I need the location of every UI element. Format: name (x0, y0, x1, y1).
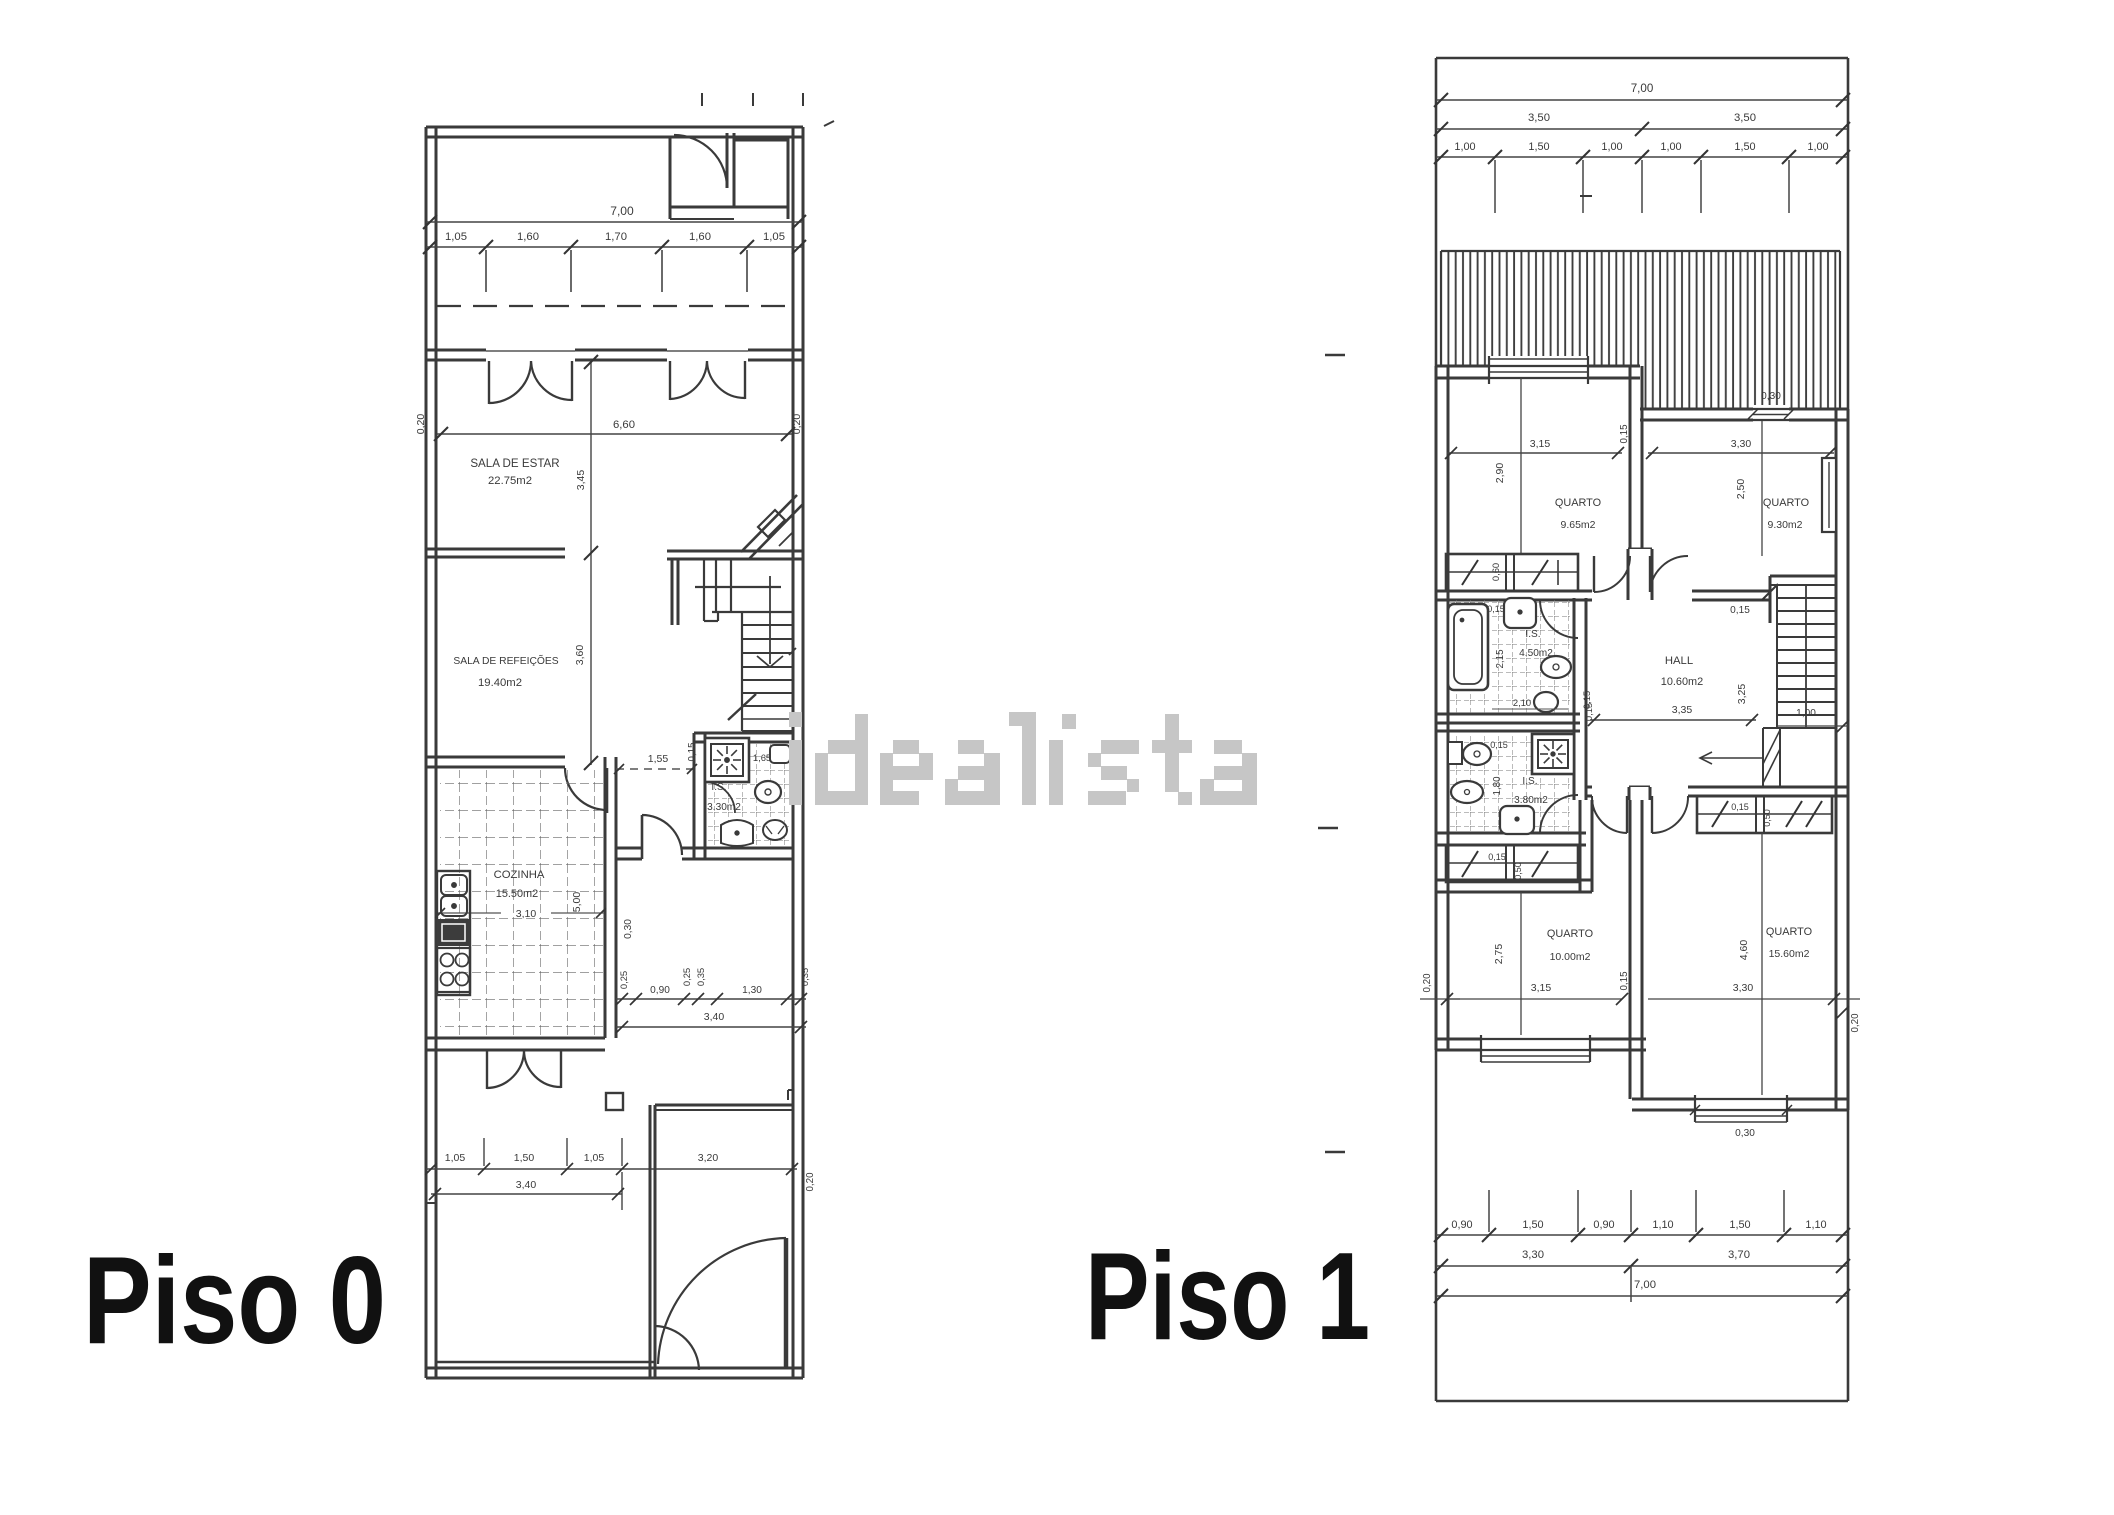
svg-text:3,15: 3,15 (1530, 438, 1551, 450)
svg-text:SALA DE REFEIÇÕES: SALA DE REFEIÇÕES (453, 654, 558, 667)
svg-text:5,00: 5,00 (571, 892, 583, 913)
svg-text:3,30: 3,30 (1731, 438, 1752, 450)
svg-text:QUARTO: QUARTO (1763, 497, 1809, 509)
svg-text:4.50m2: 4.50m2 (1519, 648, 1553, 659)
svg-text:0,20: 0,20 (1850, 1013, 1861, 1033)
svg-text:0,15: 0,15 (1730, 605, 1750, 616)
svg-text:3,50: 3,50 (1528, 112, 1550, 124)
svg-text:0,50: 0,50 (1513, 862, 1523, 880)
svg-text:1,70: 1,70 (605, 231, 627, 243)
svg-text:0,15: 0,15 (1487, 604, 1505, 614)
svg-text:0,30: 0,30 (1735, 1128, 1755, 1139)
svg-text:QUARTO: QUARTO (1555, 497, 1601, 509)
svg-text:I.S.: I.S. (1525, 629, 1540, 640)
svg-text:1,60: 1,60 (689, 231, 711, 243)
svg-text:0,15: 0,15 (1583, 703, 1594, 721)
svg-text:1,00: 1,00 (1807, 141, 1828, 153)
svg-text:0,30: 0,30 (1761, 391, 1781, 402)
svg-text:3.80m2: 3.80m2 (1514, 795, 1548, 806)
svg-text:I.S.: I.S. (1522, 776, 1537, 787)
svg-text:2,15: 2,15 (1495, 649, 1506, 669)
svg-text:3,70: 3,70 (1728, 1249, 1750, 1261)
svg-text:1,65: 1,65 (753, 752, 771, 763)
svg-text:1,30: 1,30 (742, 985, 762, 996)
svg-text:7,00: 7,00 (1634, 1279, 1656, 1291)
svg-text:3.30m2: 3.30m2 (707, 802, 741, 813)
svg-text:1,00: 1,00 (1601, 141, 1622, 153)
svg-text:I.S.: I.S. (711, 782, 726, 793)
svg-text:1,50: 1,50 (1528, 141, 1549, 153)
svg-text:0,60: 0,60 (1490, 563, 1501, 581)
svg-text:0,15: 0,15 (1619, 971, 1630, 991)
svg-text:3,30: 3,30 (1733, 982, 1754, 994)
svg-text:9.30m2: 9.30m2 (1767, 519, 1802, 531)
svg-text:QUARTO: QUARTO (1766, 926, 1812, 938)
svg-text:10.00m2: 10.00m2 (1550, 951, 1591, 963)
svg-text:9.65m2: 9.65m2 (1560, 519, 1595, 531)
svg-text:0,15: 0,15 (1488, 852, 1506, 862)
svg-text:3,30: 3,30 (1522, 1249, 1544, 1261)
svg-text:1,05: 1,05 (584, 1152, 605, 1164)
svg-text:7,00: 7,00 (610, 204, 634, 218)
svg-text:3,10: 3,10 (516, 908, 537, 920)
svg-text:0,20: 0,20 (415, 414, 427, 435)
svg-text:0,35: 0,35 (695, 968, 706, 986)
svg-text:COZINHA: COZINHA (494, 869, 545, 881)
svg-text:0,20: 0,20 (805, 1172, 816, 1192)
svg-text:3,45: 3,45 (575, 470, 587, 491)
svg-text:1,80: 1,80 (1492, 776, 1503, 796)
svg-text:1,60: 1,60 (517, 231, 539, 243)
svg-text:0,25: 0,25 (681, 968, 692, 986)
svg-text:3,60: 3,60 (574, 645, 586, 666)
svg-text:SALA DE ESTAR: SALA DE ESTAR (470, 457, 559, 470)
svg-text:0,90: 0,90 (650, 985, 670, 996)
svg-text:4,60: 4,60 (1738, 940, 1750, 961)
svg-text:1,50: 1,50 (1522, 1219, 1543, 1231)
svg-text:10.60m2: 10.60m2 (1661, 676, 1703, 688)
svg-text:1,05: 1,05 (445, 1152, 466, 1164)
svg-text:1,05: 1,05 (763, 231, 785, 243)
svg-text:15.60m2: 15.60m2 (1769, 948, 1810, 960)
svg-text:0,30: 0,30 (623, 919, 634, 939)
svg-text:0,15: 0,15 (1490, 740, 1508, 750)
svg-text:22.75m2: 22.75m2 (488, 475, 532, 487)
svg-text:0,50: 0,50 (1762, 809, 1772, 827)
svg-text:3,40: 3,40 (704, 1011, 725, 1023)
svg-text:3,15: 3,15 (1531, 982, 1552, 994)
svg-text:19.40m2: 19.40m2 (478, 677, 522, 689)
svg-text:HALL: HALL (1665, 655, 1693, 667)
svg-text:Piso 1: Piso 1 (1085, 1228, 1370, 1366)
svg-text:0,15: 0,15 (1619, 424, 1630, 444)
svg-text:2,90: 2,90 (1494, 463, 1506, 484)
svg-text:3,20: 3,20 (698, 1152, 719, 1164)
svg-text:7,00: 7,00 (1631, 82, 1654, 95)
svg-text:1,50: 1,50 (1729, 1219, 1750, 1231)
svg-text:1,05: 1,05 (445, 231, 467, 243)
svg-text:0,15: 0,15 (1731, 802, 1749, 812)
svg-text:1,00: 1,00 (1660, 141, 1681, 153)
svg-text:0,25: 0,25 (618, 971, 629, 989)
svg-text:0,20: 0,20 (791, 414, 803, 435)
svg-text:QUARTO: QUARTO (1547, 928, 1593, 940)
svg-text:2,75: 2,75 (1493, 944, 1505, 965)
svg-text:1,00: 1,00 (1454, 141, 1475, 153)
svg-text:3,25: 3,25 (1736, 684, 1748, 705)
svg-text:0,90: 0,90 (1593, 1219, 1614, 1231)
svg-text:1,55: 1,55 (648, 753, 669, 765)
svg-text:1,00: 1,00 (1796, 708, 1816, 719)
svg-text:0,90: 0,90 (1451, 1219, 1472, 1231)
svg-text:1,50: 1,50 (1734, 141, 1755, 153)
svg-text:3,35: 3,35 (1672, 704, 1693, 716)
svg-text:3,40: 3,40 (516, 1179, 537, 1191)
svg-text:6,60: 6,60 (613, 419, 635, 431)
svg-text:1,10: 1,10 (1652, 1219, 1673, 1231)
svg-text:15.50m2: 15.50m2 (496, 888, 538, 900)
svg-text:3,50: 3,50 (1734, 112, 1756, 124)
svg-text:Piso 0: Piso 0 (83, 1232, 386, 1370)
svg-text:1,50: 1,50 (514, 1152, 535, 1164)
svg-text:0,35: 0,35 (799, 968, 810, 986)
svg-text:2,10: 2,10 (1513, 697, 1531, 708)
svg-text:1,10: 1,10 (1805, 1219, 1826, 1231)
svg-text:2,50: 2,50 (1735, 479, 1747, 500)
svg-text:0,20: 0,20 (1422, 973, 1433, 993)
